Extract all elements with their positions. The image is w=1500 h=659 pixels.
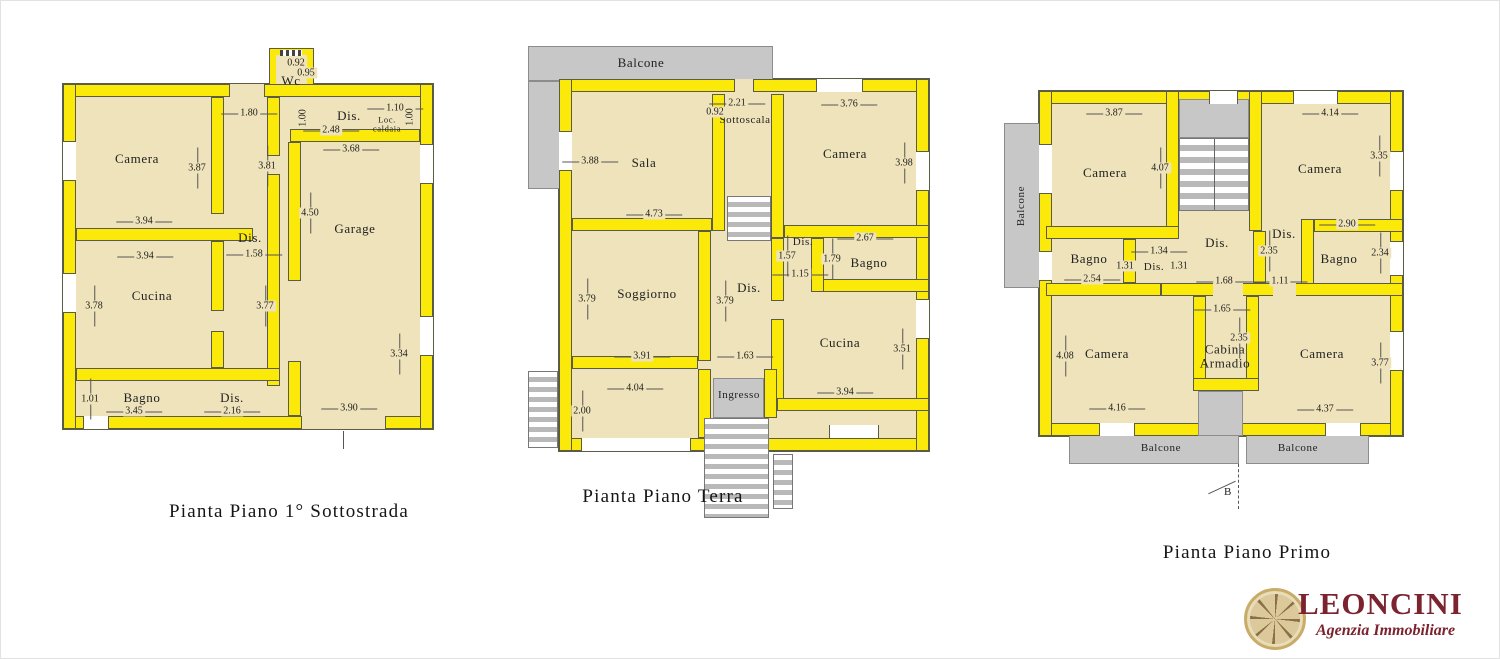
plan-title-primo: Pianta Piano Primo [1163,542,1331,564]
dim-label: 4.14 [1319,108,1341,119]
dim-label: 4.04 [624,383,646,394]
wall [1046,226,1179,239]
dim-label: 3.77 [254,301,276,312]
agency-logo: LEONCINI Agenzia Immobiliare [1244,586,1459,656]
dim-label: 4.08 [1054,351,1076,362]
dim-label: 2.34 [1369,248,1391,259]
dim-label: 1.10 [384,103,406,114]
window [1390,241,1403,276]
dim-label: 1.63 [734,351,756,362]
room-label-camera: Camera [1300,347,1344,361]
dim-label: 3.88 [579,156,601,167]
window [83,416,109,429]
window [916,151,929,191]
room-label-bagno: Bagno [1321,252,1358,266]
dim-label: 4.73 [643,209,665,220]
room-label-dis: Dis. [793,237,813,249]
room-label-camera: Camera [1298,162,1342,176]
dim-label: 3.78 [83,301,105,312]
dim-label: 3.76 [838,99,860,110]
section-line [1238,464,1239,509]
room-label-bagno: Bagno [851,256,888,270]
window [581,438,691,451]
dim-label: 2.16 [221,406,243,417]
stairs [1179,138,1249,211]
dim-label: 1.80 [238,108,260,119]
stairs [727,196,771,241]
room-label-balcone: Balcone [1141,443,1181,455]
dim-label: 1.31 [1168,261,1190,272]
dim-label: 4.07 [1149,163,1171,174]
wall [1314,219,1403,232]
section-label-b: B [1224,487,1232,499]
room-label-dis: Dis. [337,109,361,123]
dim-label: 3.91 [631,351,653,362]
wall [771,238,784,301]
dim-label: 3.94 [134,251,156,262]
wall [777,398,929,411]
wall [811,279,929,292]
floorplan-sheet: Camera Garage Dis. Loc. caldaia Wc Dis. … [0,0,1500,659]
room-label-soggiorno: Soggiorno [617,287,677,301]
dim-label: 1.57 [776,251,798,262]
window [420,144,433,184]
dim-label: 0.92 [704,107,726,118]
room-label-dis: Dis. [1144,262,1164,274]
wall [76,368,280,381]
stair-landing [1198,391,1243,436]
wall [420,84,433,429]
wall [1249,91,1262,231]
wall [1253,231,1266,283]
dim-label: 3.87 [1103,108,1125,119]
room-label-dis: Dis. [1272,227,1296,241]
dim-label: 2.54 [1081,274,1103,285]
driveway-mark [343,431,344,449]
wall [916,79,929,451]
window [420,316,433,356]
dim-label: 3.90 [338,403,360,414]
room-label-garage: Garage [334,222,375,236]
dim-label: 3.51 [891,344,913,355]
dim-label: 3.68 [340,144,362,155]
window [1325,423,1361,436]
window [1039,144,1052,194]
window [559,131,572,171]
room-label-cabina-armadio: Cabina Armadio [1194,342,1256,369]
window [1293,91,1338,104]
room-label-camera: Camera [1085,347,1129,361]
balcony [528,81,561,189]
dim-label: 2.67 [854,233,876,244]
stairs [773,454,793,509]
wall [1166,91,1179,231]
wall [211,331,224,368]
dim-label: 1.11 [1269,276,1290,287]
wall [1046,283,1161,296]
dim-label: 1.34 [1148,246,1170,257]
room-label-sottoscala: Sottoscala [719,115,770,127]
dim-label: 3.79 [576,294,598,305]
wall [267,174,280,386]
dim-label: 3.79 [714,296,736,307]
room-label-dis: Dis. [1205,236,1229,250]
dim-label: 1.65 [1211,304,1233,315]
window [1209,91,1238,104]
window [829,425,879,438]
room-label-loc-caldaia: Loc. caldaia [366,116,408,135]
dim-label: 2.48 [320,125,342,136]
wall [572,218,712,231]
dim-label: 1.00 [298,107,309,129]
dim-label: 3.45 [123,406,145,417]
logo-tagline: Agenzia Immobiliare [1316,622,1455,640]
window [63,141,76,181]
dim-label: 4.37 [1314,404,1336,415]
dim-label: 3.94 [834,387,856,398]
dim-label: 3.81 [256,161,278,172]
room-label-dis: Dis. [737,281,761,295]
garage-door-opening [301,416,386,429]
room-label-ingresso: Ingresso [718,390,760,402]
plan-title-sottostrada: Pianta Piano 1° Sottostrada [169,501,409,523]
wall [211,241,224,311]
window [280,50,302,56]
dim-label: 4.16 [1106,403,1128,414]
wall [63,84,76,429]
room-label-camera: Camera [823,147,867,161]
wall [764,369,777,418]
window [1390,151,1403,191]
dim-label: 2.90 [1336,219,1358,230]
wall [1193,378,1259,391]
dim-label: 2.00 [571,406,593,417]
dim-label: 3.87 [186,163,208,174]
dim-label: 1.15 [789,269,811,280]
room-label-camera: Camera [1083,166,1127,180]
wall [698,231,711,361]
wall [771,94,784,238]
room-label-balcone: Balcone [1278,443,1318,455]
room-label-cucina: Cucina [820,336,860,350]
dim-label: 1.68 [1213,276,1235,287]
room-label-camera: Camera [115,152,159,166]
dim-label: 2.35 [1228,333,1250,344]
dim-label: 1.01 [79,394,101,405]
door-opening [229,84,265,97]
wall [76,228,253,241]
door-opening [734,79,754,92]
wall [288,361,301,416]
wall [211,97,224,214]
rosette-medallion-icon [1244,588,1306,650]
dim-label: 3.35 [1368,151,1390,162]
dim-label: 1.31 [1114,261,1136,272]
window [1039,251,1052,281]
room-label-dis: Dis. [238,231,262,245]
window [816,79,863,92]
room-label-dis: Dis. [220,391,244,405]
plan-primo: Balcone Camera Camera Bagno Dis. Dis. Di… [1039,91,1403,436]
dim-label: 4.50 [299,208,321,219]
dim-label: 1.00 [405,106,416,128]
room-label-balcone: Balcone [618,56,665,70]
dim-label: 3.94 [133,216,155,227]
dim-label: 3.77 [1369,358,1391,369]
dim-label: 3.98 [893,158,915,169]
window [1390,331,1403,371]
logo-name: LEONCINI [1298,586,1463,622]
window [916,299,929,339]
room-label-sala: Sala [632,156,657,170]
dim-label: 2.21 [726,98,748,109]
dim-label: 1.58 [243,249,265,260]
room-label-bagno: Bagno [124,391,161,405]
window [1099,423,1135,436]
wall [267,97,280,156]
plan-terra: Balcone Sala Sottoscala Camera Dis. Bagn… [559,79,929,451]
room-label-bagno: Bagno [1071,252,1108,266]
room-label-cucina: Cucina [132,289,172,303]
dim-label: 0.95 [295,68,317,79]
window [63,273,76,313]
plan-title-terra: Pianta Piano Terra [582,486,743,508]
stair-landing [1179,99,1249,138]
room-label-balcone: Balcone [1016,186,1028,226]
dim-label: 3.34 [388,349,410,360]
plan-sottostrada: Camera Garage Dis. Loc. caldaia Wc Dis. … [63,84,433,429]
stairs [528,371,558,448]
dim-label: 2.35 [1258,246,1280,257]
dim-label: 1.79 [821,254,843,265]
